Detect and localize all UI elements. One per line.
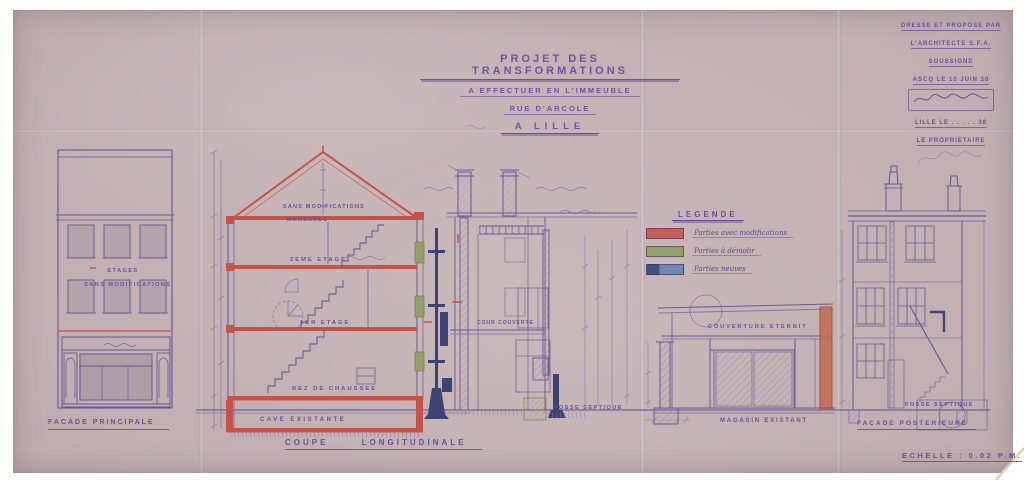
project-title-line1: PROJET DES TRANSFORMATIONS — [420, 53, 680, 80]
shed-roof-note: COUVERTURE ETERNIT — [708, 324, 808, 331]
section-attic-note2: MANSARDE — [287, 217, 328, 224]
handwritten-annotations — [345, 126, 600, 260]
caption-facade-principale: FACADE PRINCIPALE — [48, 419, 169, 430]
section-floor1-label: 1ER ETAGE — [300, 320, 350, 327]
legend-label-modified: Parties avec modifications — [692, 229, 793, 238]
caption-facade-posterieure: FACADE POSTERIEURE — [857, 420, 976, 430]
legend-item-new: Parties neuves — [646, 263, 806, 276]
dimension-chain-annex — [582, 230, 630, 405]
shop-sign-script — [104, 344, 136, 347]
owner-signature — [906, 147, 996, 169]
scanned-blueprint: PROJET DES TRANSFORMATIONS A EFFECTUER E… — [0, 0, 1024, 480]
chimney — [455, 170, 519, 216]
stamp-city-line: LILLE LE . . . . . 38 — [915, 120, 987, 128]
rear-windows — [855, 226, 936, 408]
rear-annex — [447, 213, 637, 420]
stamp-line-drawn-by: DRESSE ET PROPOSE PAR — [901, 23, 1001, 31]
legend-item-modified: Parties avec modifications — [646, 227, 806, 240]
title-block: PROJET DES TRANSFORMATIONS A EFFECTUER E… — [420, 53, 680, 134]
front-elevation-wall-note: ETAGES SANS MODIFICATIONS — [72, 261, 162, 295]
legend-swatch-modified — [646, 228, 684, 239]
stamp-line-undersigned: SOUSSIGNE — [929, 59, 974, 67]
section-basement-label: CAVE EXISTANTE — [260, 417, 346, 425]
wall-note-line2: SANS MODIFICATIONS — [84, 282, 171, 288]
stamp-date-line: ASCQ LE 10 JUIN 38 — [913, 77, 990, 85]
stamp-line-architect: L'ARCHITECTE S.F.A. — [911, 41, 992, 49]
scale-note: ECHELLE : 0.02 P.M. — [902, 451, 1022, 462]
legend-swatch-new — [646, 264, 684, 275]
project-title-line2: A EFFECTUER EN L'IMMEUBLE — [460, 86, 639, 97]
rear-elevation-drawing — [839, 166, 987, 430]
shed-section-drawing — [645, 295, 835, 424]
legend-label-demolish: Parties à démolir — [692, 247, 761, 256]
legend-label-new: Parties neuves — [692, 265, 752, 274]
shopfront — [62, 337, 170, 407]
caption-coupe-longitudinale: COUPE LONGITUDINALE — [285, 438, 482, 450]
architect-stamp-block: DRESSE ET PROPOSE PAR L'ARCHITECTE S.F.A… — [892, 14, 1010, 174]
legend: LEGENDE Parties avec modifications Parti… — [646, 204, 806, 276]
wall-note-line1: ETAGES — [107, 268, 138, 274]
legend-item-demolish: Parties à démolir — [646, 245, 806, 258]
project-title-line3: RUE D'ARCOLE — [504, 104, 597, 115]
section-septic-tank-label: FOSSE SEPTIQUE — [554, 405, 623, 412]
section-covered-yard-label: COUR COUVERTE — [477, 320, 534, 326]
rear-septic-tank-label: FOSSE SEPTIQUE — [905, 402, 974, 409]
stamp-owner-line: LE PROPRIETAIRE — [917, 138, 986, 146]
section-ground-floor-label: REZ DE CHAUSSEE — [292, 386, 377, 393]
section-attic-note1: SANS MODIFICATIONS — [283, 204, 365, 211]
architect-signature-box — [908, 89, 994, 111]
legend-title: LEGENDE — [672, 210, 744, 221]
legend-swatch-demolish — [646, 246, 684, 257]
architect-signature — [910, 90, 992, 108]
caption-magasin-existant: MAGASIN EXISTANT — [720, 418, 808, 426]
dimension-chain-left — [211, 150, 224, 430]
section-floor2-label: 2EME ETAGE — [290, 257, 347, 264]
project-title-line4: A LILLE — [501, 121, 600, 134]
door-swings — [273, 279, 303, 331]
